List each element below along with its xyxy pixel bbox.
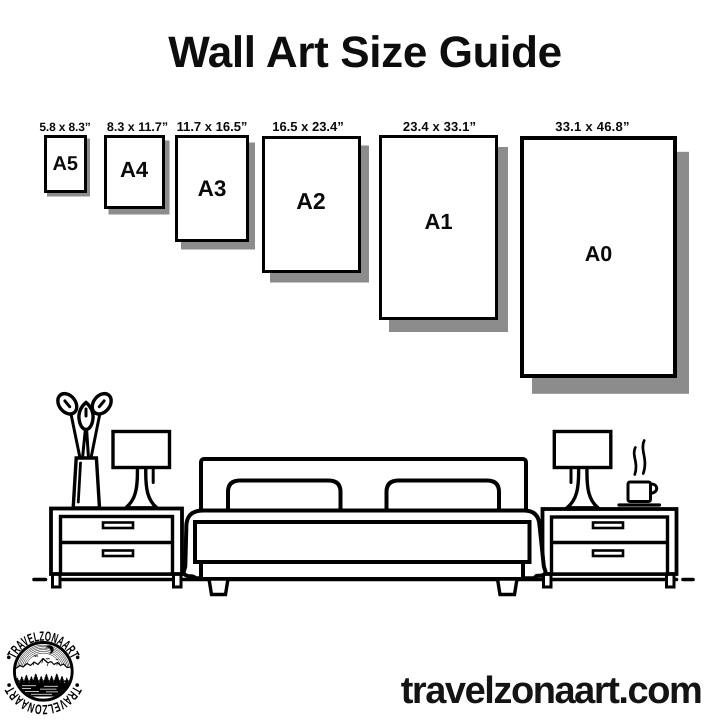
svg-text:TRAVELZONAART: TRAVELZONAART xyxy=(4,629,82,661)
